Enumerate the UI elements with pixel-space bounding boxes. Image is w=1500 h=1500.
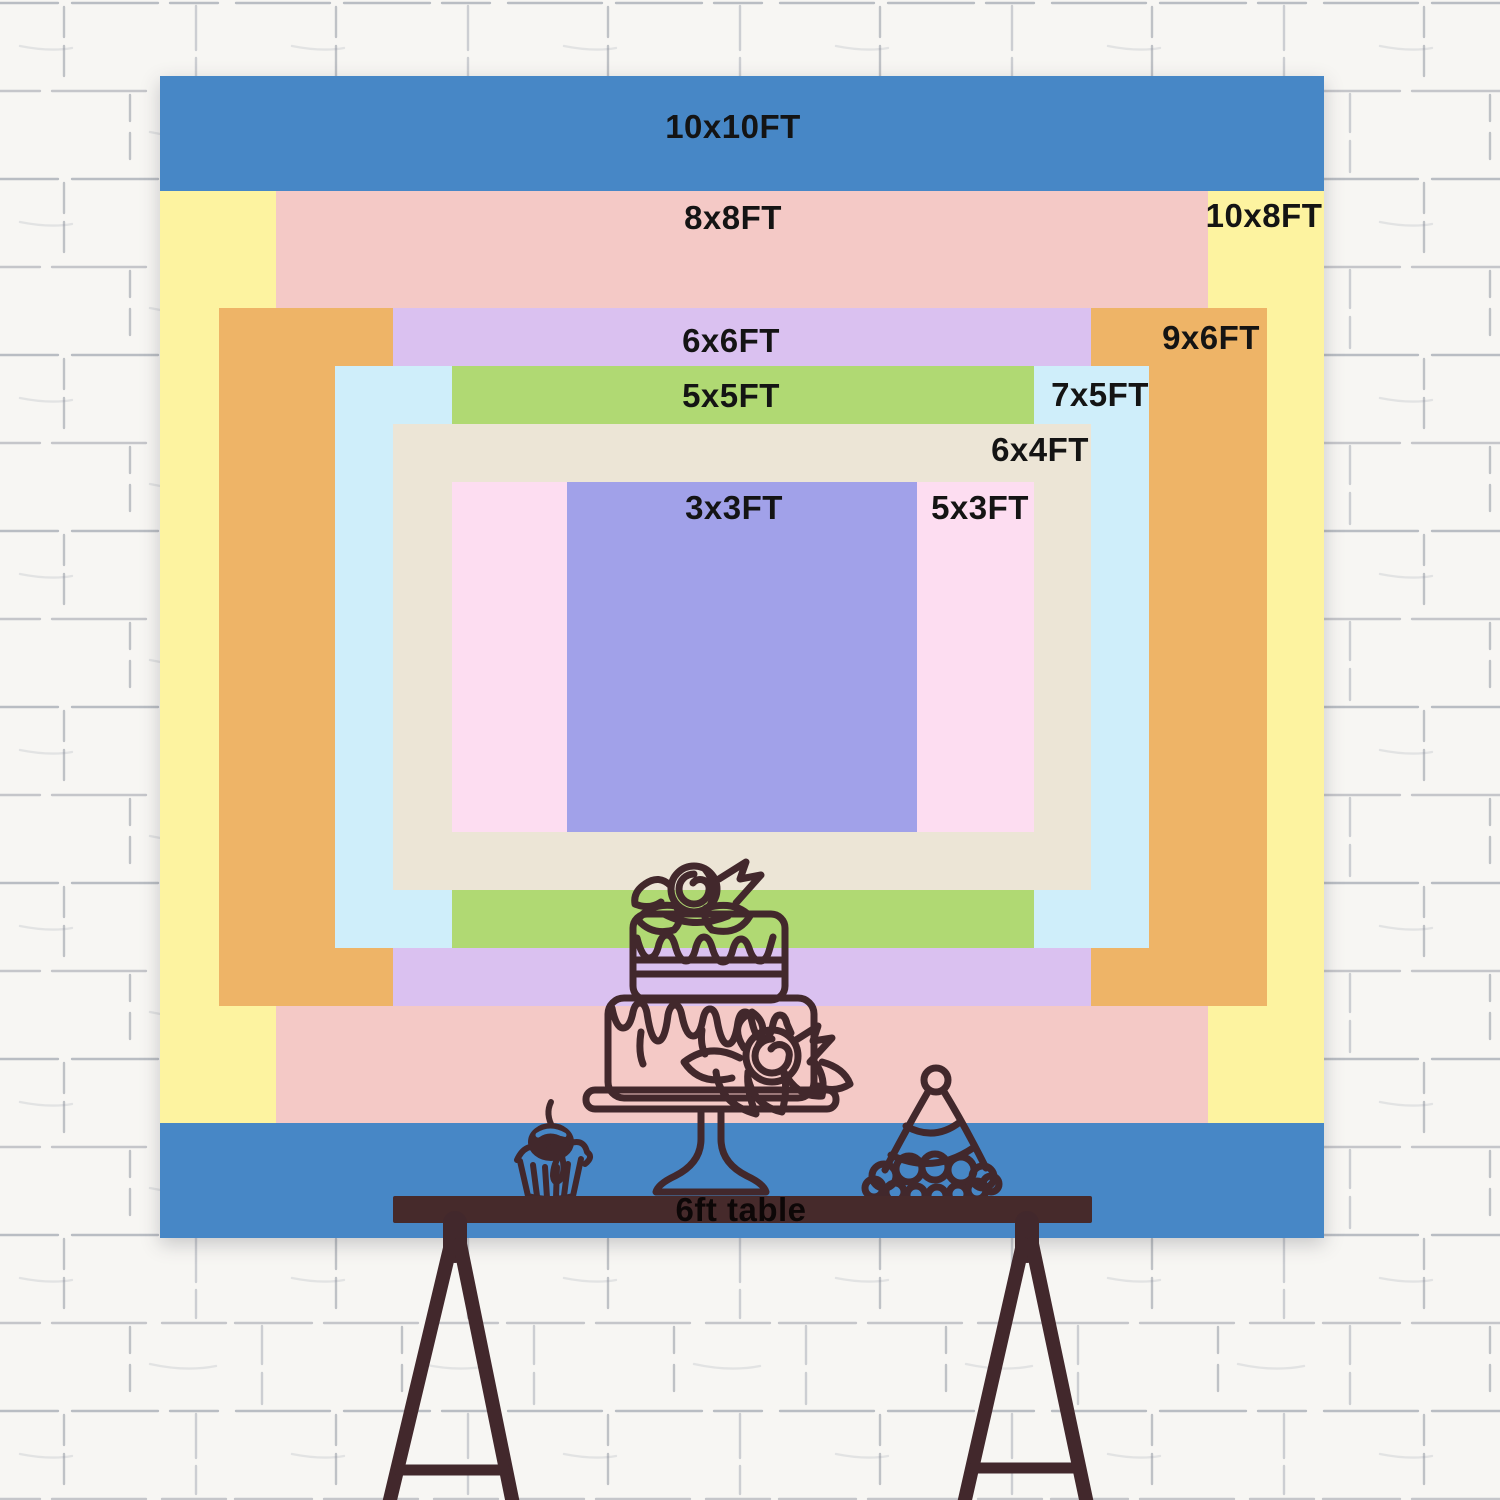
cake-top-rose-icon bbox=[635, 862, 761, 932]
table-left-leg-b bbox=[460, 1244, 513, 1500]
table-left-leg-a bbox=[389, 1244, 451, 1500]
cake-stand-pedestal bbox=[656, 1109, 766, 1192]
trestle-table bbox=[389, 1196, 1092, 1500]
table-right-leg-a bbox=[964, 1244, 1023, 1500]
table-right-leg-b bbox=[1032, 1244, 1087, 1500]
scene: 10x10FT 10x8FT 8x8FT 9x6FT 6x6FT 7x5FT 5… bbox=[0, 0, 1500, 1500]
cupcake-icon bbox=[517, 1102, 590, 1199]
cake-illustration bbox=[586, 862, 850, 1192]
table-length-label: 6ft table bbox=[675, 1191, 806, 1229]
party-hat-icon bbox=[865, 1068, 999, 1205]
dessert-table-illustration bbox=[0, 0, 1500, 1500]
